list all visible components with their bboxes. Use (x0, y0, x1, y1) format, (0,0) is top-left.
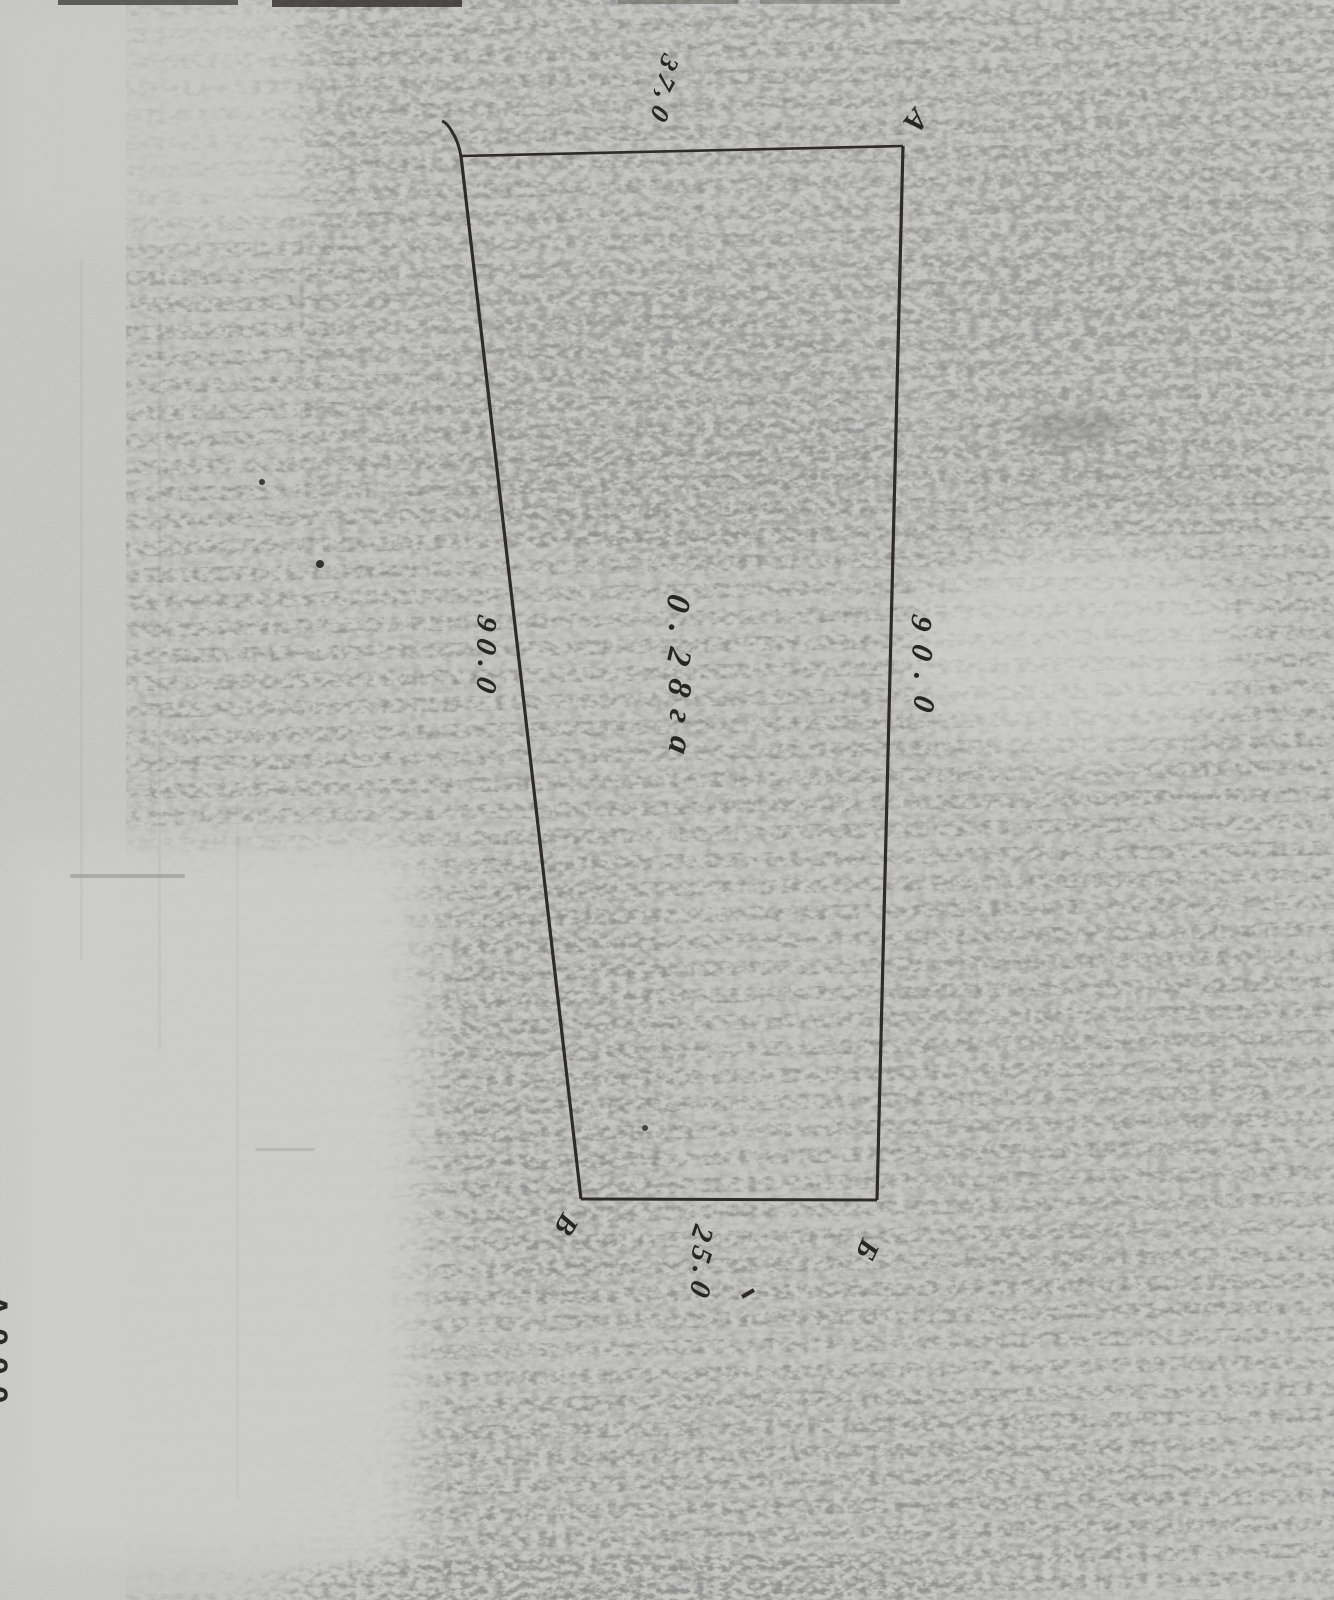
svg-text:25.0: 25.0 (680, 1220, 721, 1307)
svg-text:90.0: 90.0 (466, 612, 504, 704)
svg-text:А000: А000 (0, 1294, 14, 1415)
